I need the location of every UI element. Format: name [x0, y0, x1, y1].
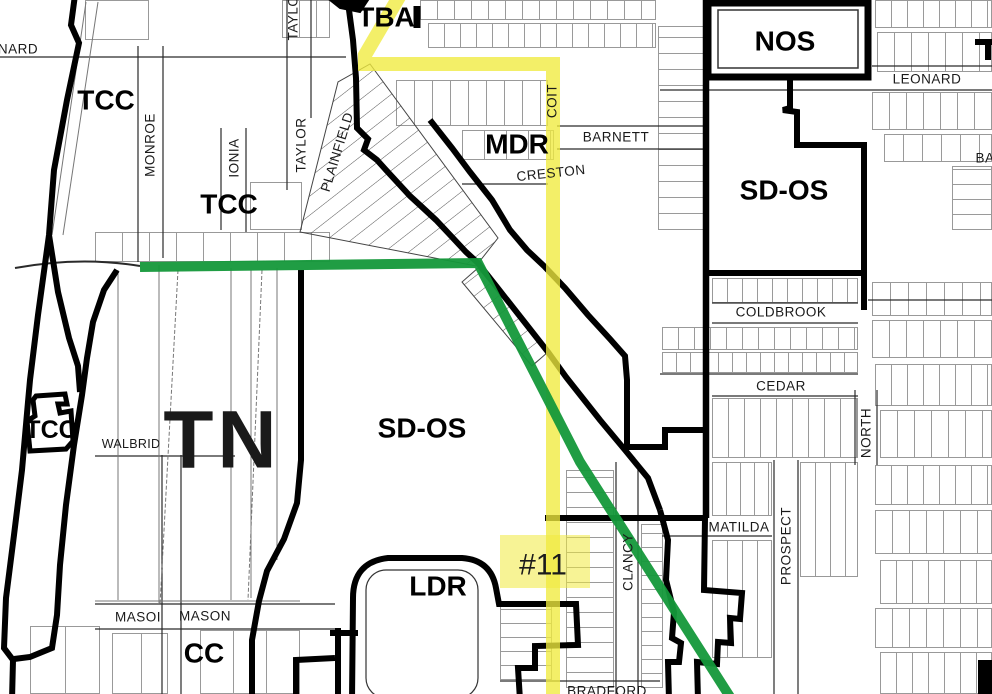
zone-label-sd-os-center: SD-OS [378, 413, 467, 444]
zoning-boundaries-layer [4, 0, 992, 694]
zone-label-ldr: LDR [409, 571, 467, 602]
boundary-branch [49, 235, 80, 392]
street-label-coldbrook: COLDBROOK [736, 305, 827, 320]
street-label-barnett-partial: BA [975, 151, 992, 166]
zone-label-tn: TN [163, 395, 280, 486]
street-label-coit: COIT [545, 84, 560, 118]
street-label-leonard: LEONARD [893, 72, 962, 87]
street-label-leonard-partial: NARD [0, 42, 38, 57]
street-label-clancy: CLANCY [621, 533, 636, 591]
zone-label-tcc-sw: TCC [25, 416, 76, 444]
zone-label-tba: TBA [357, 2, 415, 33]
boundary-br-stub [981, 663, 992, 691]
street-label-matilda: MATILDA [708, 520, 769, 535]
map-lines-layer: NARD TCC MONROE IONIA TAYLO TAYLOR PLAIN… [0, 0, 992, 694]
street-label-ionia: IONIA [227, 138, 242, 177]
street-label-walbridge-partial: WALBRID [102, 437, 161, 451]
zoning-map: NARD TCC MONROE IONIA TAYLO TAYLOR PLAIN… [0, 0, 992, 694]
street-label-monroe: MONROE [143, 113, 158, 177]
zone-label-mdr: MDR [485, 129, 549, 160]
street-label-barnett: BARNETT [583, 130, 650, 145]
street-label-taylor-partial: TAYLO [286, 0, 301, 40]
street-label-taylor: TAYLOR [294, 117, 309, 172]
boundary-se-right [697, 518, 742, 694]
street-label-mason-partial: MASOI [115, 610, 161, 625]
site-11-marker-label: #11 [519, 549, 567, 582]
zone-label-tcc-mid: TCC [200, 189, 258, 220]
boundary-west-wavy [4, 0, 79, 694]
zone-label-nos: NOS [755, 26, 816, 57]
zone-label-tcc-nw: TCC [77, 85, 135, 116]
street-label-mason: MASON [179, 609, 231, 624]
street-label-prospect: PROSPECT [779, 507, 794, 585]
boundary-ne-stub [975, 42, 992, 60]
street-label-bradford: BRADFORD [567, 684, 647, 694]
zone-label-cc: CC [184, 638, 224, 669]
zone-label-sd-os-east: SD-OS [740, 175, 829, 206]
boundary-cc-corner [296, 658, 335, 694]
street-label-cedar: CEDAR [756, 379, 806, 394]
street-label-north: NORTH [859, 408, 874, 458]
